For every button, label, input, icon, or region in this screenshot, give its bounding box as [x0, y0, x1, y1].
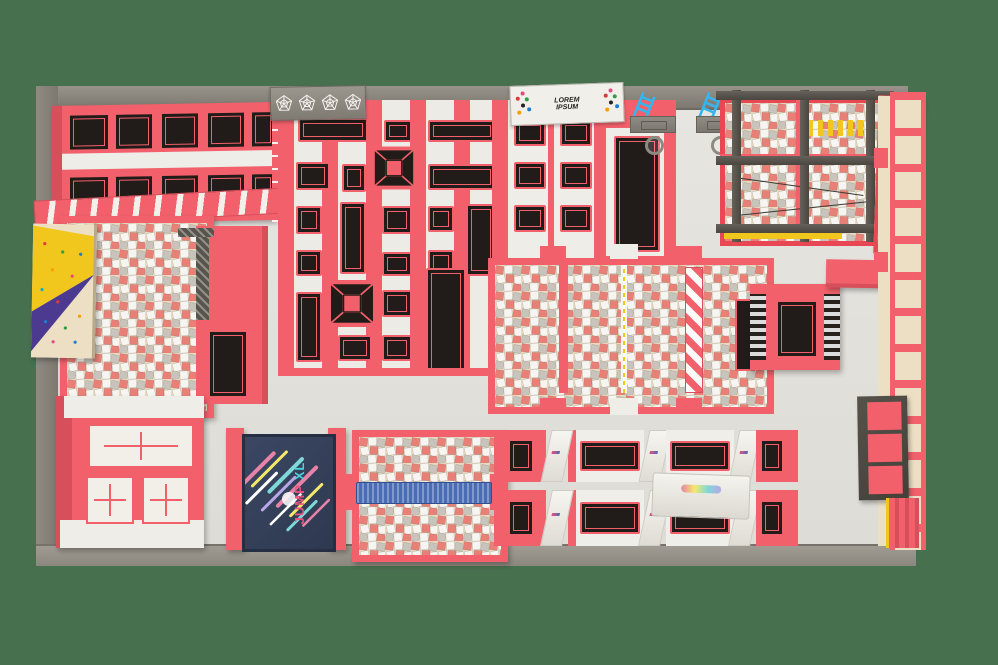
truss-beam-horizontal [178, 228, 214, 237]
brand-logo: JUMPXL [292, 462, 307, 525]
vault-box [651, 472, 750, 519]
ladder-step-tab [874, 148, 888, 168]
trampoline-bed [68, 113, 110, 152]
stunt-mat-square [142, 476, 190, 524]
pit-step [610, 398, 638, 415]
jump-lane-row [494, 490, 798, 546]
trampoline-bed [508, 439, 534, 473]
trampoline-bed [514, 205, 546, 232]
beam-mount-left [340, 474, 356, 510]
trampoline-bed [560, 205, 592, 232]
jump-lane-row [494, 430, 798, 482]
wall-run-pad [867, 402, 901, 431]
trampoline-bed [508, 500, 534, 536]
spring-cover-stripes [750, 294, 766, 360]
trampoline-park-render: JUMPXL [0, 0, 998, 665]
ninja-base-strip-yellow [724, 233, 842, 239]
scaffold-beam [716, 156, 894, 165]
screen-streak-graphic [245, 437, 333, 549]
pit-divider [559, 265, 568, 393]
pit-step [676, 398, 702, 414]
pyramid-platform [371, 146, 417, 190]
trampoline-bed [114, 112, 154, 151]
pit-step [610, 244, 638, 259]
pit-step [676, 246, 702, 260]
spider-web-graphic [271, 86, 366, 120]
trampoline-bed [760, 500, 784, 536]
lane-trampoline-small [504, 490, 538, 546]
trampoline-bed [428, 120, 493, 142]
interactive-screen: JUMPXL [242, 434, 336, 552]
slide-ramp [886, 498, 919, 548]
brand-word-xl: XL [292, 462, 307, 481]
airbag-zone [56, 396, 204, 548]
lane-trampoline-small [756, 490, 788, 546]
spider-web-banner [270, 85, 367, 121]
trampoline-bed [382, 290, 412, 317]
spring-cover-stripes [824, 294, 840, 360]
trampoline-bed [338, 335, 372, 361]
hoop-backboard [630, 116, 676, 133]
trampoline-bed [382, 252, 412, 276]
trampoline-bed [384, 120, 412, 142]
trampoline-bed [296, 292, 322, 362]
battle-arena-pit [488, 258, 760, 400]
lane-post [788, 490, 798, 546]
grid-walkway [62, 150, 276, 170]
wall-run-pad [868, 466, 902, 495]
truss-beam-vertical [196, 236, 209, 320]
airbag-top-platform [64, 396, 204, 418]
trampoline-bed [298, 118, 368, 142]
wall-run-panel [857, 396, 909, 501]
pit-step [540, 246, 566, 260]
trampoline-bed [776, 300, 818, 358]
battle-beam-blue [356, 482, 492, 504]
ninja-course [716, 90, 894, 242]
scaffold-beam [732, 90, 741, 242]
lane-post [788, 430, 798, 482]
lane-trampoline-small [756, 430, 788, 482]
stunt-mat-wide [88, 424, 194, 468]
lane-trampoline-wide [576, 490, 644, 546]
trampoline-bed [428, 164, 493, 190]
slackline [621, 265, 627, 393]
dunk-hoop [628, 94, 676, 152]
trampoline-bed [296, 162, 330, 190]
pyramid-platform [326, 280, 378, 327]
trampoline-bed [580, 441, 640, 471]
lane-trampoline-small [504, 430, 538, 482]
trampoline-bed [296, 250, 322, 276]
court-bottom-edge [278, 368, 493, 376]
stunt-mat-square [86, 476, 134, 524]
scaffold-beam [800, 90, 809, 242]
ladder-step-tab [874, 252, 888, 272]
trampoline-bed [760, 439, 784, 473]
trampoline-bed [428, 206, 454, 232]
main-court-left [278, 100, 493, 376]
trampoline-bed [670, 441, 730, 471]
lane-post [494, 490, 504, 546]
trampoline-bed [160, 111, 200, 150]
performance-trampoline [750, 284, 840, 370]
foam-cubes [495, 265, 767, 407]
battle-beam-striped [685, 267, 703, 393]
sponsor-banner: LOREM IPSUM [509, 82, 624, 126]
trampoline-bed [560, 162, 592, 189]
airbag-bottom-platform [60, 520, 204, 548]
lane-post [494, 430, 504, 482]
trampoline-bed [382, 335, 412, 361]
banner-line2: IPSUM [531, 103, 603, 113]
target-dots-graphic [515, 93, 532, 118]
wall-run-pad [868, 434, 902, 463]
trampoline-bed [342, 164, 366, 192]
trampoline-bed [382, 206, 412, 234]
target-dots-graphic [603, 90, 620, 115]
lane-trampoline-wide [576, 430, 644, 482]
trampoline-bed [514, 162, 546, 189]
trampoline-bed [208, 330, 248, 398]
brand-word-jump: JUMP [292, 484, 307, 524]
trampoline-lane [426, 268, 466, 374]
hoop-ring [645, 136, 664, 155]
trampoline-bed [296, 206, 322, 234]
trampoline-bed [206, 111, 246, 150]
trampoline-bed [580, 502, 640, 534]
pit-step [540, 398, 566, 414]
trampoline-bed [340, 202, 366, 274]
climbing-wall [31, 223, 97, 358]
scaffold-beam [716, 224, 894, 233]
battle-pit-frame [488, 258, 774, 414]
scaffold-beam [716, 91, 894, 100]
banner-text: LOREM IPSUM [531, 96, 603, 113]
